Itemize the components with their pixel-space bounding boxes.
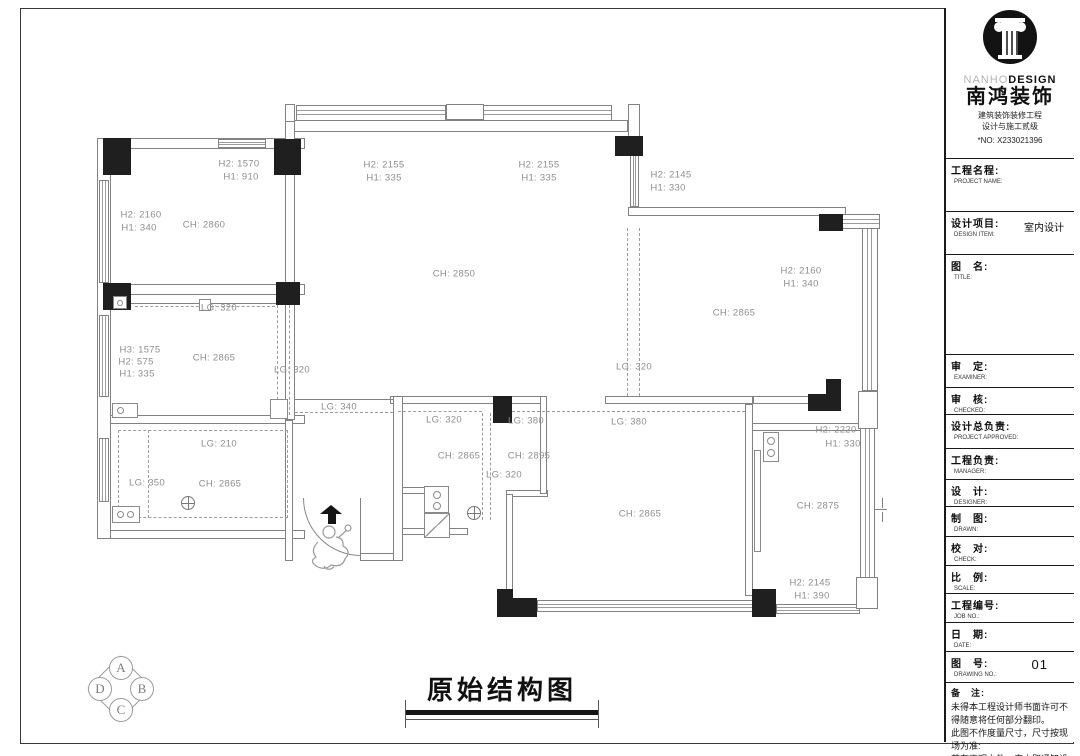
field-label-cn: 工程负责:	[951, 456, 999, 467]
title-underline-thin	[405, 719, 599, 720]
decor: DESIGN	[1008, 74, 1056, 86]
title-block: NANHODESIGN 南鸿装饰 建筑装饰装修工程 设计与施工贰级 *NO: X…	[944, 8, 1074, 742]
decor	[1002, 31, 1018, 55]
field-label-cn: 比 例:	[951, 573, 988, 584]
dimension-label: H1: 330	[650, 183, 685, 194]
dimension-label: CH: 2865	[199, 479, 242, 490]
dimension-label: LG: 380	[508, 416, 544, 427]
title-block-field: 设 计:DESIGNER:	[946, 480, 1074, 507]
dimension-label: LG: 320	[486, 470, 522, 481]
dimension-label: CH: 2865	[713, 308, 756, 319]
compass-letter: B	[130, 677, 154, 701]
dimension-label: H1: 335	[366, 173, 401, 184]
dimension-label: CH: 2875	[797, 501, 840, 512]
dimension-label: H2: 2160	[781, 266, 822, 277]
title-block-field: 制 图:DRAWN:	[946, 507, 1074, 537]
dimension-label: H1: 390	[794, 591, 829, 602]
dimension-label: LG: 320	[616, 362, 652, 373]
dimension-label: H1: 335	[521, 173, 556, 184]
field-label-en: SCALE:	[954, 586, 1074, 592]
dimension-label: H2: 2160	[121, 210, 162, 221]
dimension-label: LG: 380	[611, 417, 647, 428]
field-label-en: MANAGER:	[954, 469, 1074, 475]
dimension-label: LG: 320	[274, 365, 310, 376]
dimension-label: CH: 2865	[193, 353, 236, 364]
dimension-label: CH: 2860	[183, 220, 226, 231]
title-block-field: 比 例:SCALE:	[946, 566, 1074, 594]
field-label-cn: 审 定:	[951, 362, 988, 373]
field-label-cn: 审 核:	[951, 395, 988, 406]
field-value: 室内设计	[1024, 219, 1064, 234]
dimension-label: LG: 320	[426, 415, 462, 426]
dimension-label: LG: 340	[321, 402, 357, 413]
compass-letter: D	[88, 677, 112, 701]
dimension-label: H1: 910	[223, 172, 258, 183]
title-block-field: 设计总负责:PROJECT APPROVED:	[946, 415, 1074, 449]
field-value: 01	[1032, 657, 1048, 672]
field-label-cn: 图 号:	[951, 659, 988, 670]
dimension-label: H2: 2155	[364, 160, 405, 171]
brand-latin: NANHODESIGN	[946, 74, 1074, 86]
dimension-label: CH: 2895	[508, 451, 551, 462]
title-underline-tick	[598, 700, 599, 728]
field-label-en: PROJECT APPROVED:	[954, 435, 1074, 441]
field-label-en: DRAWN:	[954, 527, 1074, 533]
field-label-cn: 工程名程:	[951, 166, 999, 177]
dimension-label: H2: 1570	[219, 159, 260, 170]
compass-rose: A B C D	[87, 655, 153, 721]
remarks-block: 备 注: 未得本工程设计师书面许可不得随意将任何部分翻印。此图不作度量尺寸，尺寸…	[946, 683, 1074, 756]
title-block-field: 工程编号:JOB NO.:	[946, 594, 1074, 623]
title-underline-bar	[405, 710, 599, 715]
dimension-label: LG: 320	[201, 303, 237, 314]
compass-letter: A	[109, 656, 133, 680]
remarks-line: 此图不作度量尺寸，尺寸按现场为准:	[951, 727, 1070, 753]
field-label-en: JOB NO.:	[954, 614, 1074, 620]
dimension-label: H2: 2220	[816, 425, 857, 436]
dimension-label: H2: 2145	[651, 170, 692, 181]
column-logo-icon	[981, 8, 1039, 66]
field-label-cn: 校 对:	[951, 544, 988, 555]
title-block-field: 图 号:DRAWING NO.:01	[946, 652, 1074, 683]
title-block-field: 校 对:CHECK:	[946, 537, 1074, 566]
dimension-label: H1: 340	[783, 279, 818, 290]
dimension-labels-layer: H2: 1570H1: 910H2: 2160H1: 340CH: 2860H2…	[0, 0, 944, 742]
field-label-cn: 设计总负责:	[951, 422, 1010, 433]
field-label-en: DATE:	[954, 643, 1074, 649]
decor: 建筑装饰装修工程	[946, 111, 1074, 122]
decor: 设计与施工贰级	[946, 122, 1074, 133]
dimension-label: LG: 350	[129, 478, 165, 489]
remarks-title: 备 注:	[951, 687, 1070, 700]
compass-letter: C	[109, 698, 133, 722]
company-logo-block: NANHODESIGN 南鸿装饰 建筑装饰装修工程 设计与施工贰级 *NO: X…	[946, 8, 1074, 159]
dimension-label: CH: 2850	[433, 269, 476, 280]
dimension-label: H3: 1575	[120, 345, 161, 356]
field-label-cn: 设 计:	[951, 487, 988, 498]
dimension-label: H2: 2145	[790, 578, 831, 589]
title-block-field: 设计项目:DESIGN ITEM:室内设计	[946, 212, 1074, 255]
title-block-field: 日 期:DATE:	[946, 623, 1074, 652]
brand-cert-number: *NO: X233021396	[946, 136, 1074, 145]
brand-certification: 建筑装饰装修工程 设计与施工贰级	[946, 111, 1074, 133]
title-block-rows: 工程名程:PROJECT NAME:设计项目:DESIGN ITEM:室内设计图…	[946, 159, 1074, 683]
title-block-field: 审 定:EXAMINER:	[946, 355, 1074, 388]
dimension-label: CH: 2865	[619, 509, 662, 520]
field-label-cn: 设计项目:	[951, 219, 999, 230]
decor	[1001, 22, 1019, 31]
remarks-line: 未得本工程设计师书面许可不得随意将任何部分翻印。	[951, 701, 1070, 727]
field-label-en: TITLE:	[954, 275, 1074, 281]
field-label-cn: 制 图:	[951, 514, 988, 525]
dimension-label: H1: 340	[121, 223, 156, 234]
field-label-en: CHECKED:	[954, 408, 1074, 414]
title-underline-tick	[405, 700, 406, 728]
decor	[998, 55, 1022, 59]
dimension-label: H2: 2155	[519, 160, 560, 171]
title-block-field: 工程名程:PROJECT NAME:	[946, 159, 1074, 212]
drawing-title: 原始结构图	[405, 670, 599, 707]
decor: NANHO	[964, 74, 1009, 86]
dimension-label: H1: 330	[825, 439, 860, 450]
field-label-en: PROJECT NAME:	[954, 179, 1074, 185]
field-label-en: CHECK:	[954, 557, 1074, 563]
field-label-cn: 日 期:	[951, 630, 988, 641]
title-block-field: 工程负责:MANAGER:	[946, 449, 1074, 480]
title-block-field: 图 名:TITLE:	[946, 255, 1074, 355]
field-label-en: DRAWING NO.:	[954, 672, 1074, 678]
dimension-label: CH: 2865	[438, 451, 481, 462]
field-label-cn: 工程编号:	[951, 601, 999, 612]
decor: 未得本工程设计师书面许可不得随意将任何部分翻印。此图不作度量尺寸，尺寸按现场为准…	[951, 701, 1070, 756]
dimension-label: LG: 210	[201, 439, 237, 450]
dimension-label: H2: 575	[118, 357, 153, 368]
brand-name: 南鸿装饰	[946, 86, 1074, 108]
field-label-en: EXAMINER:	[954, 375, 1074, 381]
decor	[995, 18, 1025, 22]
field-label-en: DESIGNER:	[954, 500, 1074, 506]
title-block-field: 审 核:CHECKED:	[946, 388, 1074, 415]
field-label-cn: 图 名:	[951, 262, 988, 273]
dimension-label: H1: 335	[119, 369, 154, 380]
